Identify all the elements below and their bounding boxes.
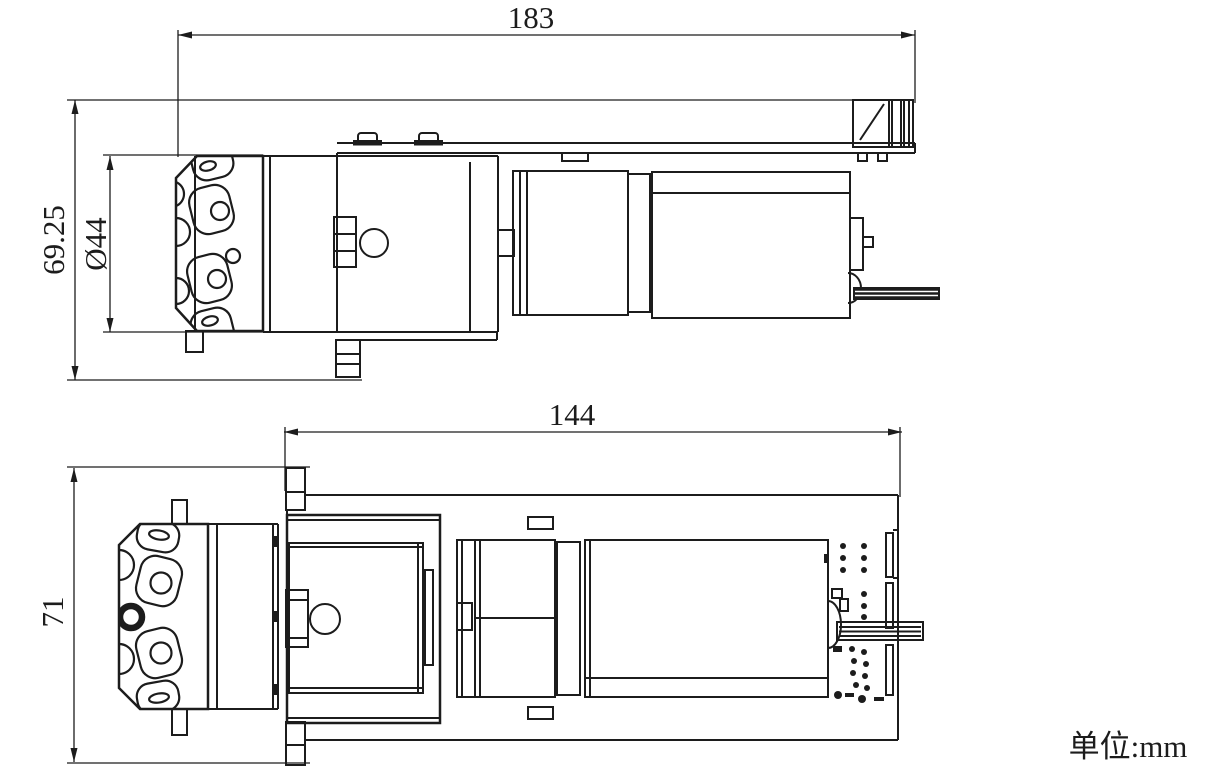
dim-71-label: 71 (35, 597, 70, 628)
technical-drawing: 183 69.25 Ø44 144 71 单位:mm (0, 0, 1205, 784)
dim-144-label: 144 (549, 397, 596, 432)
drawing-sheet: 183 69.25 Ø44 144 71 单位:mm (0, 0, 1205, 784)
dim-183-label: 183 (508, 0, 555, 35)
motor-cable-side (853, 287, 940, 300)
dim-dia44-label: Ø44 (78, 217, 113, 271)
unit-label: 单位:mm (1069, 729, 1188, 764)
dim-69-25-label: 69.25 (36, 205, 71, 275)
